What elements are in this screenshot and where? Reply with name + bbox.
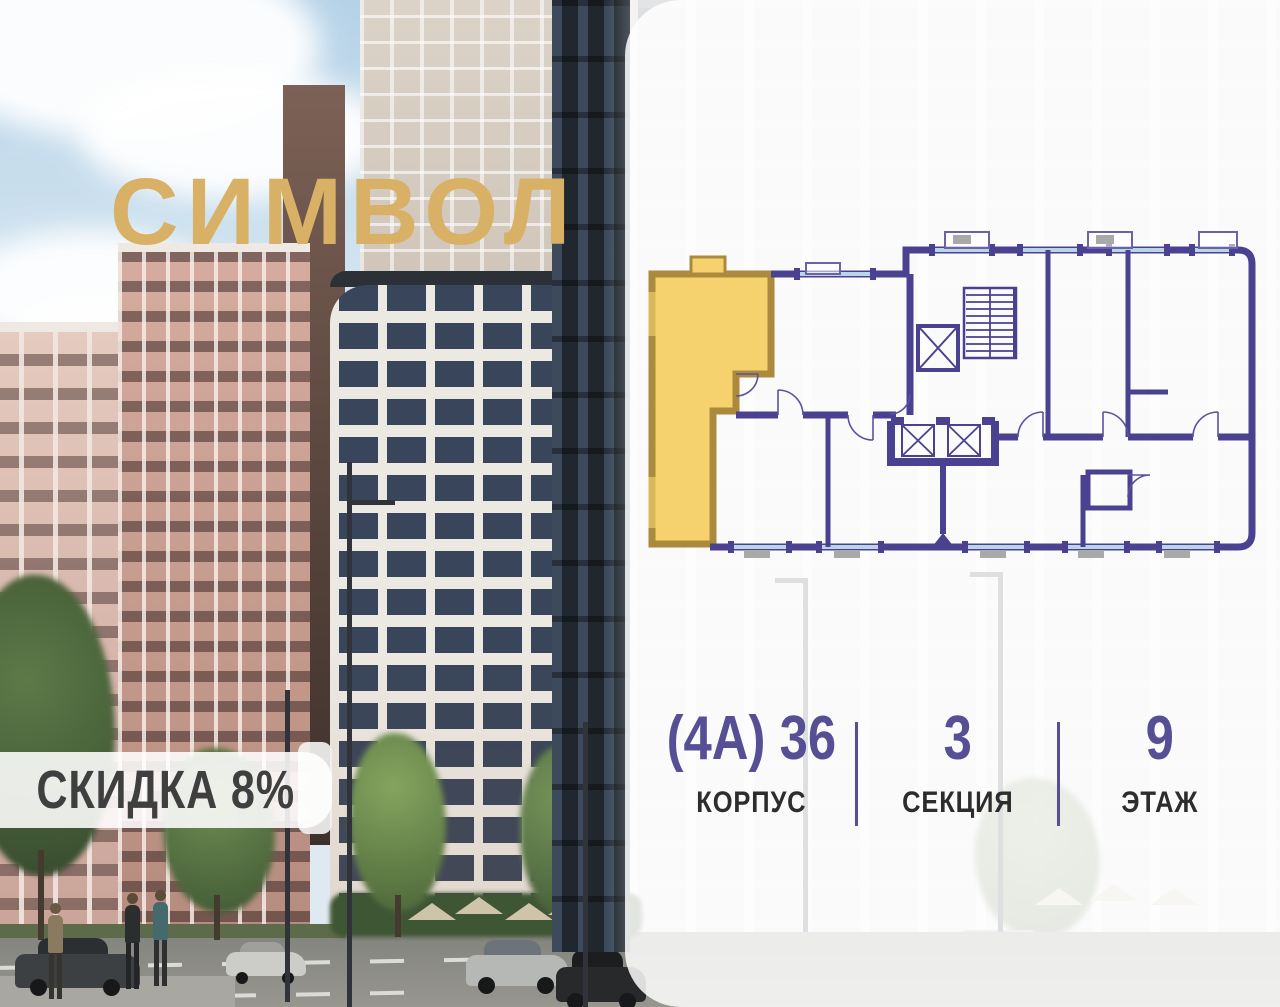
stat-block-sektsiya: 3 СЕКЦИЯ [858, 706, 1058, 820]
floor-plan-svg [648, 228, 1260, 558]
listing-stats: (4А) 36 КОРПУС 3 СЕКЦИЯ 9 ЭТАЖ [648, 706, 1260, 826]
window-tick [728, 244, 1235, 553]
ad-banner: СИМВОЛ СКИДКА 8% [0, 0, 1280, 1007]
tree-trunk [395, 895, 401, 937]
pedestrian [125, 893, 140, 989]
stat-block-etazh: 9 ЭТАЖ [1060, 706, 1260, 820]
balcony [691, 257, 725, 274]
pedestrian [48, 903, 63, 999]
cafe-umbrella [505, 903, 553, 920]
discount-badge: СКИДКА 8% [0, 752, 332, 828]
car [15, 938, 140, 996]
elevator-icon [918, 326, 958, 370]
lamp-post [347, 462, 352, 1007]
stat-value-etazh: 9 [1078, 706, 1242, 772]
cafe-umbrella [408, 903, 456, 920]
stairs-icon [964, 288, 1016, 358]
lamp-post [583, 722, 588, 1007]
discount-badge-label: СКИДКА 8% [37, 759, 296, 821]
stat-label-sektsiya: СЕКЦИЯ [873, 786, 1043, 820]
tree-trunk [38, 850, 44, 940]
foreground-dark-tower [552, 0, 630, 952]
cafe-umbrella [455, 897, 503, 914]
stat-block-korpus: (4А) 36 КОРПУС [648, 706, 855, 820]
lamp-post [285, 690, 290, 1002]
elevator-icon [948, 425, 980, 456]
stat-value-korpus: (4А) 36 [667, 706, 837, 772]
brand-logo: СИМВОЛ [110, 158, 550, 267]
pedestrian [153, 890, 168, 986]
tree-trunk [214, 895, 220, 940]
lamp-post-arm [347, 500, 395, 505]
stat-label-korpus: КОРПУС [664, 786, 840, 820]
selected-apartment-highlight[interactable] [652, 274, 771, 544]
elevator-icon [902, 425, 934, 456]
wall-foot [932, 533, 954, 547]
stat-value-sektsiya: 3 [876, 706, 1040, 772]
car [226, 942, 306, 984]
stat-label-etazh: ЭТАЖ [1075, 786, 1245, 820]
